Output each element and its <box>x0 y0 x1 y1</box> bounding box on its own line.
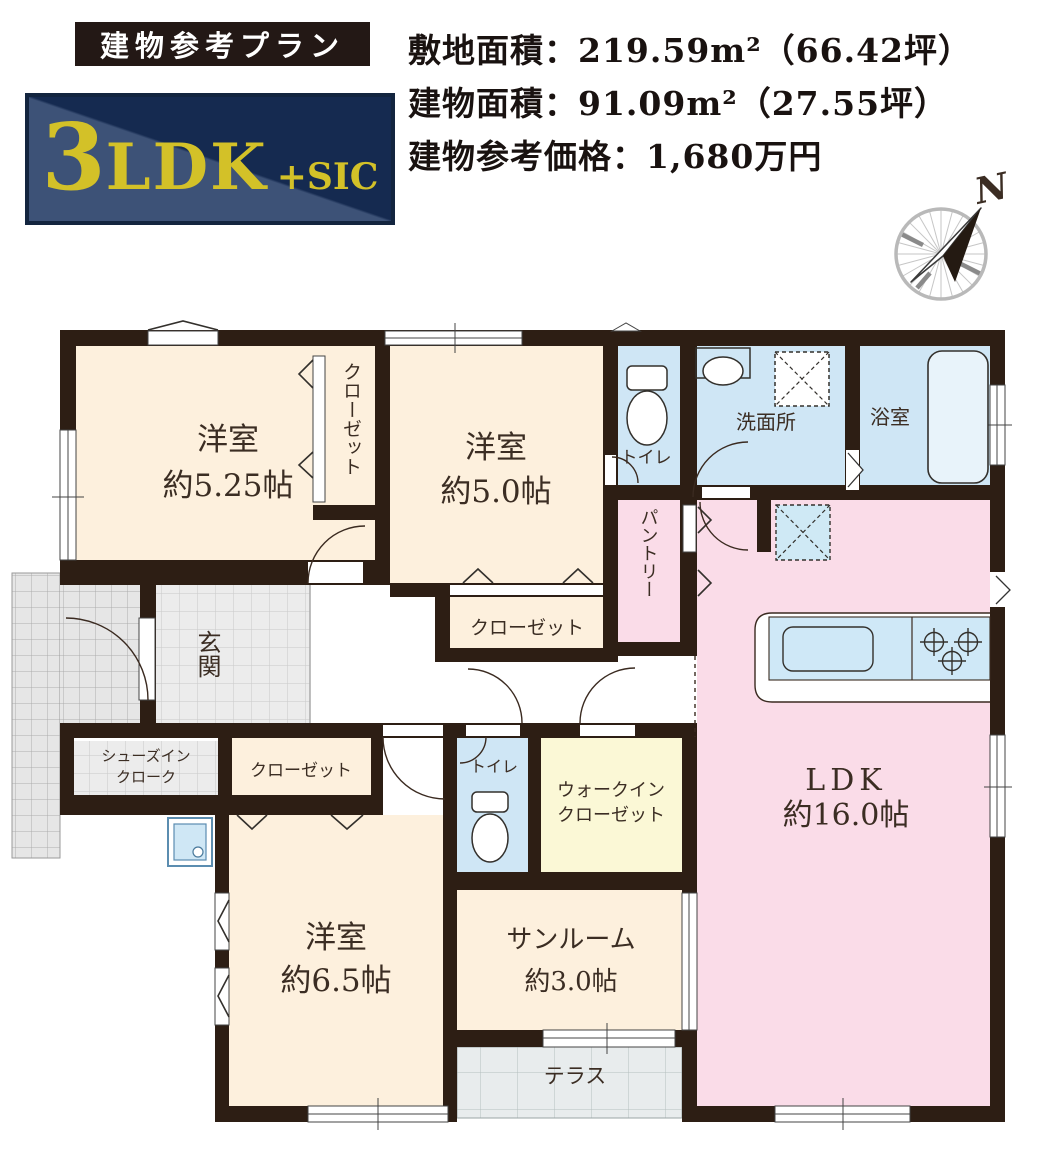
floorplan-flyer: 建物参考プラン 3 LDK +SIC 敷地面積：219.59m²（66.42坪）… <box>0 0 1055 1166</box>
room-sunroom <box>457 890 682 1030</box>
walkin-closet-label1: ウォークイン <box>557 780 665 801</box>
ldk-size: 約16.0帖 <box>783 798 910 833</box>
window <box>215 893 229 950</box>
bedroom2-label: 洋室 <box>465 430 527 466</box>
vent-hood <box>612 323 640 331</box>
water-heater-icon <box>168 818 212 866</box>
kitchen-sink-icon <box>783 627 873 671</box>
closet-door-leaf <box>313 356 325 502</box>
closet2-label: クローゼット <box>470 617 584 639</box>
ldk-label: LDK <box>805 763 886 798</box>
north-label: N <box>970 164 1014 213</box>
washer-space-icon <box>775 352 829 406</box>
bathtub-icon <box>928 351 988 483</box>
bedroom3-size: 約6.5帖 <box>280 963 391 999</box>
room-bedroom3 <box>229 815 443 1106</box>
porch-outer <box>12 573 60 858</box>
walkin-closet-label2: クローゼット <box>557 805 665 826</box>
door-arc <box>468 669 522 723</box>
bedroom1-size: 約5.25帖 <box>162 468 293 504</box>
room-walkin-closet <box>541 735 682 872</box>
sunroom-label: サンルーム <box>506 925 635 955</box>
door-opening <box>308 562 363 583</box>
door-opening <box>466 725 520 736</box>
bathroom-label: 浴室 <box>870 405 910 429</box>
kitchen-counter <box>755 613 990 702</box>
pantry-label: パントリー <box>638 508 659 598</box>
fridge-space-icon <box>776 505 830 560</box>
window <box>215 968 229 1025</box>
door-opening <box>605 455 616 485</box>
washroom-label: 洗面所 <box>736 410 796 434</box>
closet3-label: クローゼット <box>250 761 352 781</box>
bedroom2-size: 約5.0帖 <box>440 474 551 510</box>
bay-window <box>148 331 218 345</box>
shoes-in-closet-label2: クローク <box>116 768 176 786</box>
porch-inner <box>60 585 140 727</box>
closet-opening <box>450 585 603 595</box>
toilet-icon <box>472 792 508 862</box>
entrance-tile <box>156 578 310 730</box>
entrance-label: 玄関 <box>193 630 221 678</box>
terrace-label: テラス <box>544 1064 607 1088</box>
toilet-icon <box>627 366 667 445</box>
door-arc <box>580 668 635 723</box>
sunroom-size: 約3.0帖 <box>524 967 617 997</box>
compass: N <box>896 164 1014 299</box>
closet1-label: クローゼット <box>340 362 362 476</box>
toilet1-label: トイレ <box>621 448 672 468</box>
pantry-door-leaf <box>683 505 696 552</box>
floorplan-drawing: N <box>0 0 1055 1166</box>
shoes-in-closet-label1: シューズイン <box>101 747 190 765</box>
door-opening <box>580 725 635 736</box>
door-opening <box>702 487 750 498</box>
door-opening <box>383 725 443 736</box>
bedroom1-label: 洋室 <box>197 422 259 458</box>
bedroom3-label: 洋室 <box>305 920 367 956</box>
door-arc <box>383 737 445 799</box>
toilet2-label: トイレ <box>470 757 518 776</box>
